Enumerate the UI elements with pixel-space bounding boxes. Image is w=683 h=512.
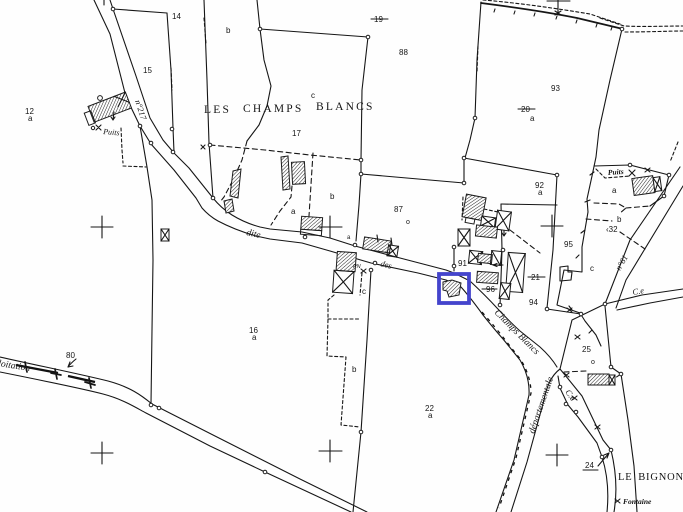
svg-text:o: o — [406, 219, 410, 226]
svg-text:b: b — [330, 192, 335, 201]
svg-text:95: 95 — [564, 240, 573, 249]
svg-text:o: o — [591, 359, 595, 366]
svg-text:a: a — [428, 411, 433, 420]
svg-text:c: c — [362, 287, 366, 296]
svg-text:b: b — [226, 26, 231, 35]
svg-text:‹32: ‹32 — [606, 225, 618, 234]
svg-text:LES: LES — [204, 104, 231, 116]
svg-text:94: 94 — [529, 298, 538, 307]
svg-text:15: 15 — [143, 66, 152, 75]
svg-text:88: 88 — [399, 48, 408, 57]
svg-text:Puits: Puits — [608, 167, 625, 177]
svg-text:a: a — [530, 114, 535, 123]
svg-text:a: a — [28, 114, 33, 123]
svg-text:87: 87 — [394, 205, 403, 214]
svg-text:b: b — [617, 215, 622, 224]
svg-text:c: c — [590, 264, 594, 273]
svg-text:a: a — [612, 186, 617, 195]
svg-text:24: 24 — [585, 461, 594, 470]
svg-text:a: a — [538, 188, 543, 197]
svg-text:25: 25 — [582, 345, 591, 354]
svg-text:BLANCS: BLANCS — [316, 101, 375, 113]
svg-text:a: a — [291, 207, 296, 216]
svg-text:b: b — [352, 365, 357, 374]
svg-text:Fontaine: Fontaine — [623, 497, 652, 506]
svg-text:93: 93 — [551, 84, 560, 93]
svg-text:80: 80 — [66, 351, 75, 360]
svg-text:CHAMPS: CHAMPS — [243, 103, 304, 115]
svg-text:14: 14 — [172, 12, 181, 21]
svg-text:PN: PN — [353, 264, 361, 270]
svg-text:a: a — [252, 333, 257, 342]
svg-text:91: 91 — [458, 259, 467, 268]
svg-text:Puits: Puits — [102, 127, 120, 137]
svg-text:c: c — [311, 91, 315, 100]
svg-text:17: 17 — [292, 129, 301, 138]
svg-text:C.e: C.e — [632, 285, 645, 297]
svg-text:LE BIGNON: LE BIGNON — [618, 472, 683, 483]
